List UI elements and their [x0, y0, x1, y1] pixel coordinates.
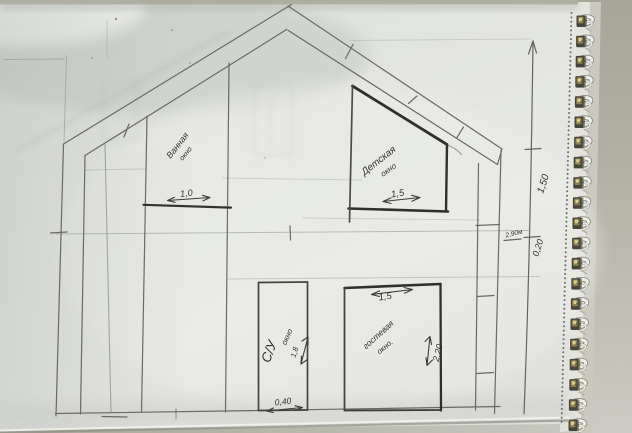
svg-text:1,5: 1,5 [390, 187, 405, 200]
svg-text:0,40: 0,40 [274, 395, 292, 407]
svg-text:1,5: 1,5 [378, 291, 393, 304]
svg-text:1,0: 1,0 [180, 188, 194, 199]
